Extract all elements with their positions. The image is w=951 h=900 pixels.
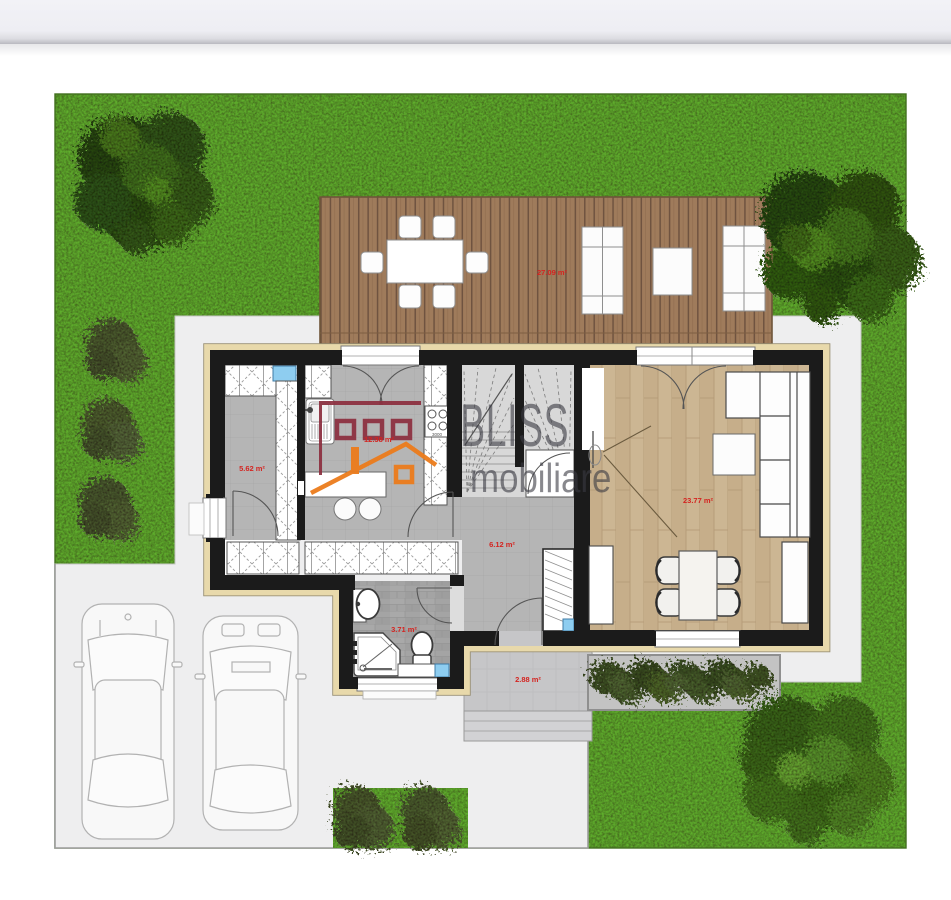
svg-text:3000: 3000: [432, 432, 443, 437]
svg-text:2.88 m²: 2.88 m²: [515, 675, 541, 684]
svg-text:mobiliare: mobiliare: [470, 456, 611, 501]
svg-text:12.38 m²: 12.38 m²: [364, 435, 395, 444]
svg-text:6.12 m²: 6.12 m²: [489, 540, 515, 549]
svg-text:BLISS: BLISS: [460, 392, 569, 459]
svg-text:27.09 m²: 27.09 m²: [537, 268, 568, 277]
svg-text:23.77 m²: 23.77 m²: [683, 496, 714, 505]
svg-text:3.71 m²: 3.71 m²: [391, 625, 417, 634]
svg-text:5.62 m²: 5.62 m²: [239, 464, 265, 473]
